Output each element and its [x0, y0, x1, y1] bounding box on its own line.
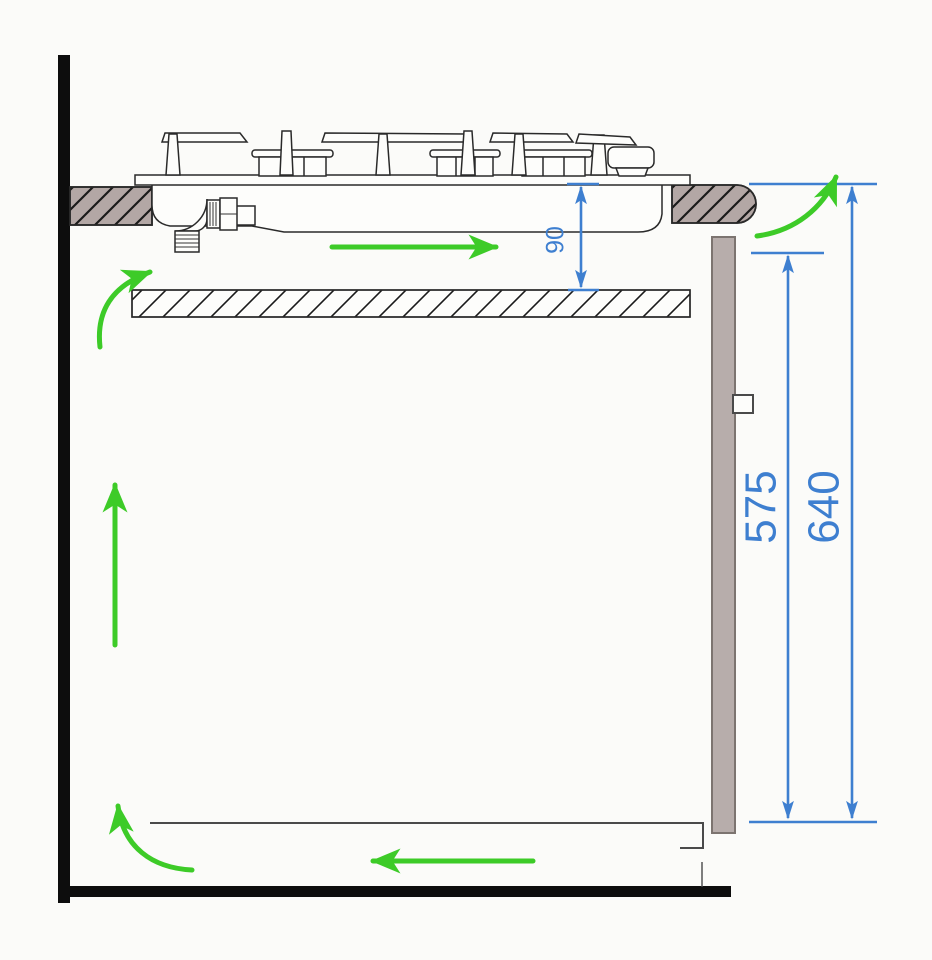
hob-top-plate	[135, 175, 690, 185]
dimension-label-575: 575	[737, 470, 786, 543]
burner-right	[515, 150, 592, 176]
cabinet-base	[150, 823, 703, 887]
airflow-arrow-bottom-turn-icon	[118, 806, 192, 870]
pan-support-post	[461, 131, 475, 175]
installation-diagram: 90 575 640	[0, 0, 932, 960]
cabinet-bottom-line	[150, 823, 703, 848]
pan-support-post	[512, 134, 526, 175]
pan-support-arm	[322, 133, 472, 142]
ventilation-shelf	[132, 290, 690, 317]
pan-support-post	[280, 131, 293, 175]
dimension-label-640: 640	[800, 470, 849, 543]
worktop-right-section	[672, 185, 756, 223]
gas-hob	[135, 131, 690, 252]
pan-support-arm	[490, 133, 573, 142]
panel-bracket	[733, 395, 753, 413]
hob-burners	[162, 131, 654, 176]
furniture-side-panel	[712, 237, 735, 833]
floor-section	[58, 886, 731, 897]
wall-section	[58, 55, 70, 903]
worktop-left-section	[70, 187, 152, 225]
control-knob	[608, 147, 654, 176]
dimension-label-90: 90	[542, 226, 570, 254]
pan-support-post	[376, 134, 390, 175]
diagram-canvas: 90 575 640	[0, 0, 932, 960]
airflow-arrow-worktop-out-icon	[757, 177, 836, 236]
gas-thread	[175, 231, 199, 252]
pan-support-arm	[576, 134, 636, 145]
pan-support-post	[166, 134, 180, 175]
